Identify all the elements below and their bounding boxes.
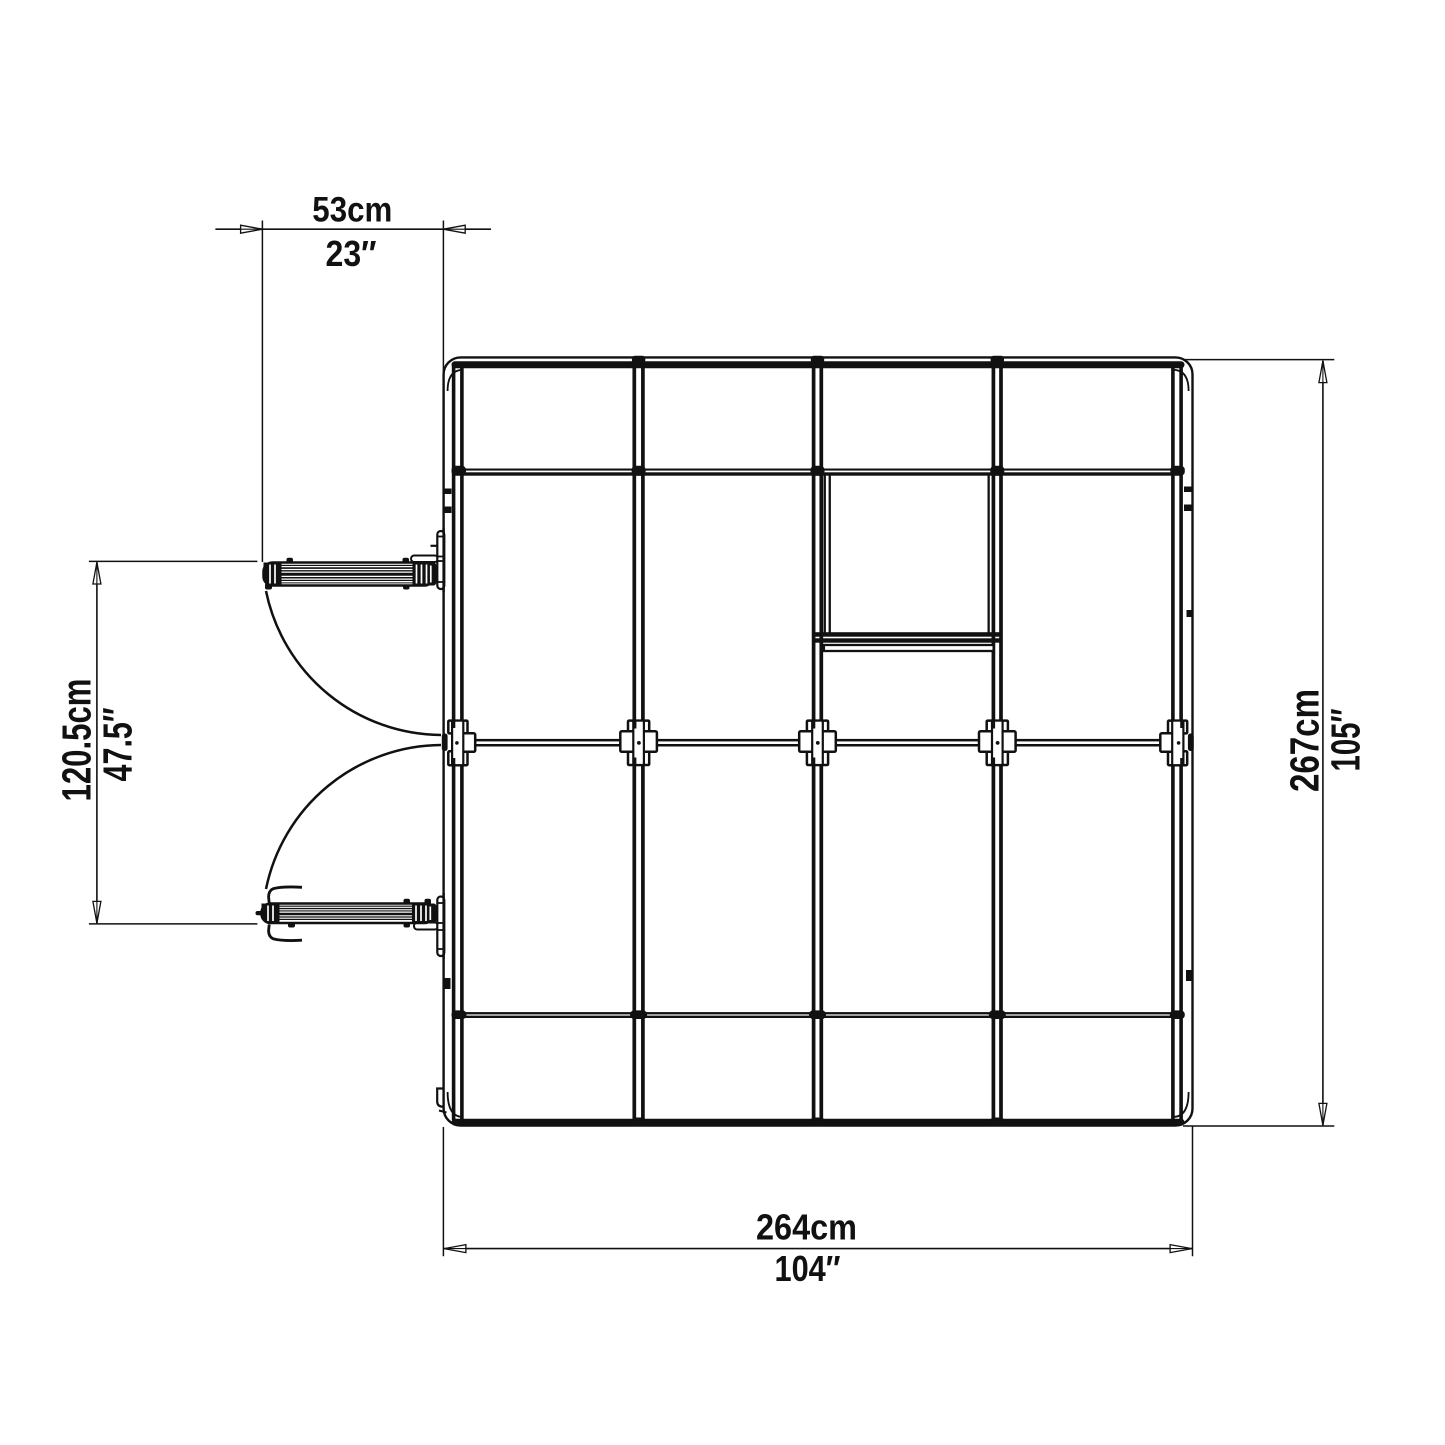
svg-text:23″: 23″ [326, 233, 377, 274]
svg-text:267cm: 267cm [1282, 689, 1328, 792]
svg-text:105″: 105″ [1323, 709, 1369, 772]
svg-text:47.5″: 47.5″ [95, 708, 141, 782]
svg-text:120.5cm: 120.5cm [54, 679, 100, 802]
svg-text:53cm: 53cm [312, 191, 392, 230]
svg-text:264cm: 264cm [756, 1207, 857, 1248]
svg-text:104″: 104″ [775, 1248, 841, 1289]
